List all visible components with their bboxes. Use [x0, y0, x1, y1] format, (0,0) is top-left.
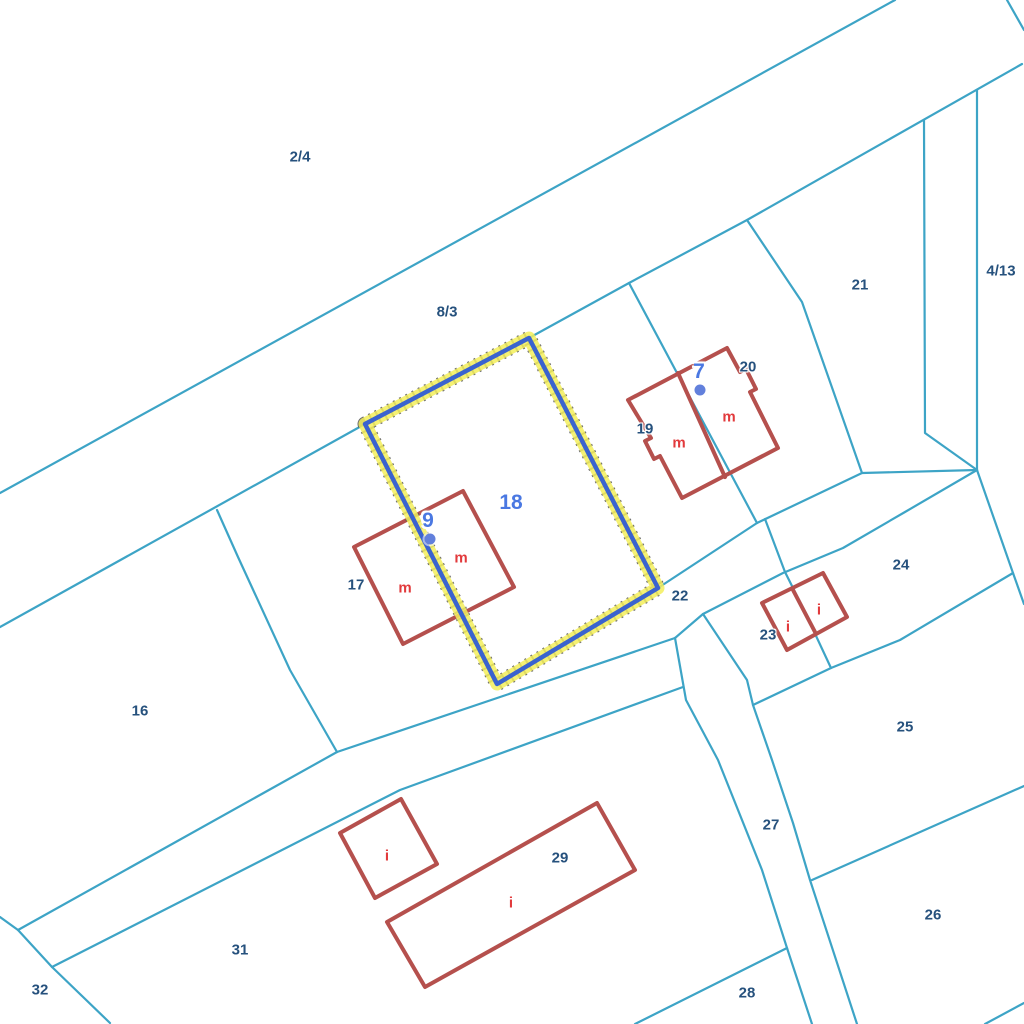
parcel-label-22: 22 — [672, 588, 689, 605]
boundary-line — [18, 638, 675, 930]
corner-line-top-right — [1007, 0, 1024, 30]
address-label-9: 9 — [422, 509, 434, 533]
boundary-line — [747, 220, 862, 473]
boundary-line — [812, 786, 1024, 880]
parcel-label-2-4: 2/4 — [290, 149, 311, 166]
boundary-line — [977, 470, 1024, 604]
address-point-marker — [695, 385, 706, 396]
parcel-label-21: 21 — [852, 277, 869, 294]
parcel-label-17: 17 — [348, 577, 365, 594]
boundary-line — [703, 614, 857, 1024]
parcel-label-19: 19 — [637, 421, 654, 438]
parcel-label-31: 31 — [232, 942, 249, 959]
map-canvas[interactable]: 2/48/3214/132019171622232425262728293132… — [0, 0, 1024, 1024]
boundary-line — [924, 120, 977, 470]
parcel-label-32: 32 — [32, 982, 49, 999]
address-label-7: 7 — [693, 360, 705, 384]
building-use-label-i: i — [817, 602, 821, 619]
building-use-label-m: m — [398, 580, 411, 597]
building-divider — [793, 590, 815, 632]
building-use-label-i: i — [786, 619, 790, 636]
road-north-edge-line — [0, 0, 895, 493]
building-use-label-i: i — [509, 895, 513, 912]
building-use-label-m: m — [454, 550, 467, 567]
parcel-label-26: 26 — [925, 907, 942, 924]
parcel-label-16: 16 — [132, 703, 149, 720]
building-use-label-m: m — [722, 409, 735, 426]
building-use-label-i: i — [385, 848, 389, 865]
parcel-label-27: 27 — [763, 817, 780, 834]
address-point-marker — [425, 534, 436, 545]
building-outlines — [340, 348, 847, 987]
boundary-line — [675, 638, 812, 1024]
boundary-line — [753, 573, 1013, 705]
boundary-line — [217, 510, 337, 752]
parcel-label-24: 24 — [893, 557, 910, 574]
boundary-line — [635, 948, 787, 1024]
parcel-label-8-3: 8/3 — [437, 304, 458, 321]
parcel-label-29: 29 — [552, 850, 569, 867]
boundary-line — [675, 470, 977, 638]
boundary-line — [52, 687, 683, 967]
address-label-18: 18 — [499, 491, 522, 515]
corner-line-bottom-right — [985, 1003, 1024, 1024]
parcel-label-20: 20 — [740, 359, 757, 376]
parcel-label-23: 23 — [760, 627, 777, 644]
building-use-label-m: m — [672, 435, 685, 452]
boundary-line — [0, 917, 110, 1023]
parcel-label-28: 28 — [739, 985, 756, 1002]
parcel-label-4-13: 4/13 — [986, 263, 1015, 280]
parcel-label-25: 25 — [897, 719, 914, 736]
